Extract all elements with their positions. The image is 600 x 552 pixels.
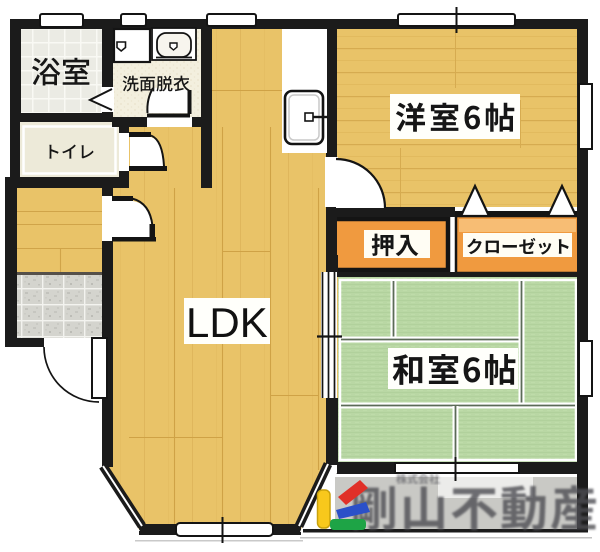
svg-text:LDK: LDK	[186, 299, 268, 346]
